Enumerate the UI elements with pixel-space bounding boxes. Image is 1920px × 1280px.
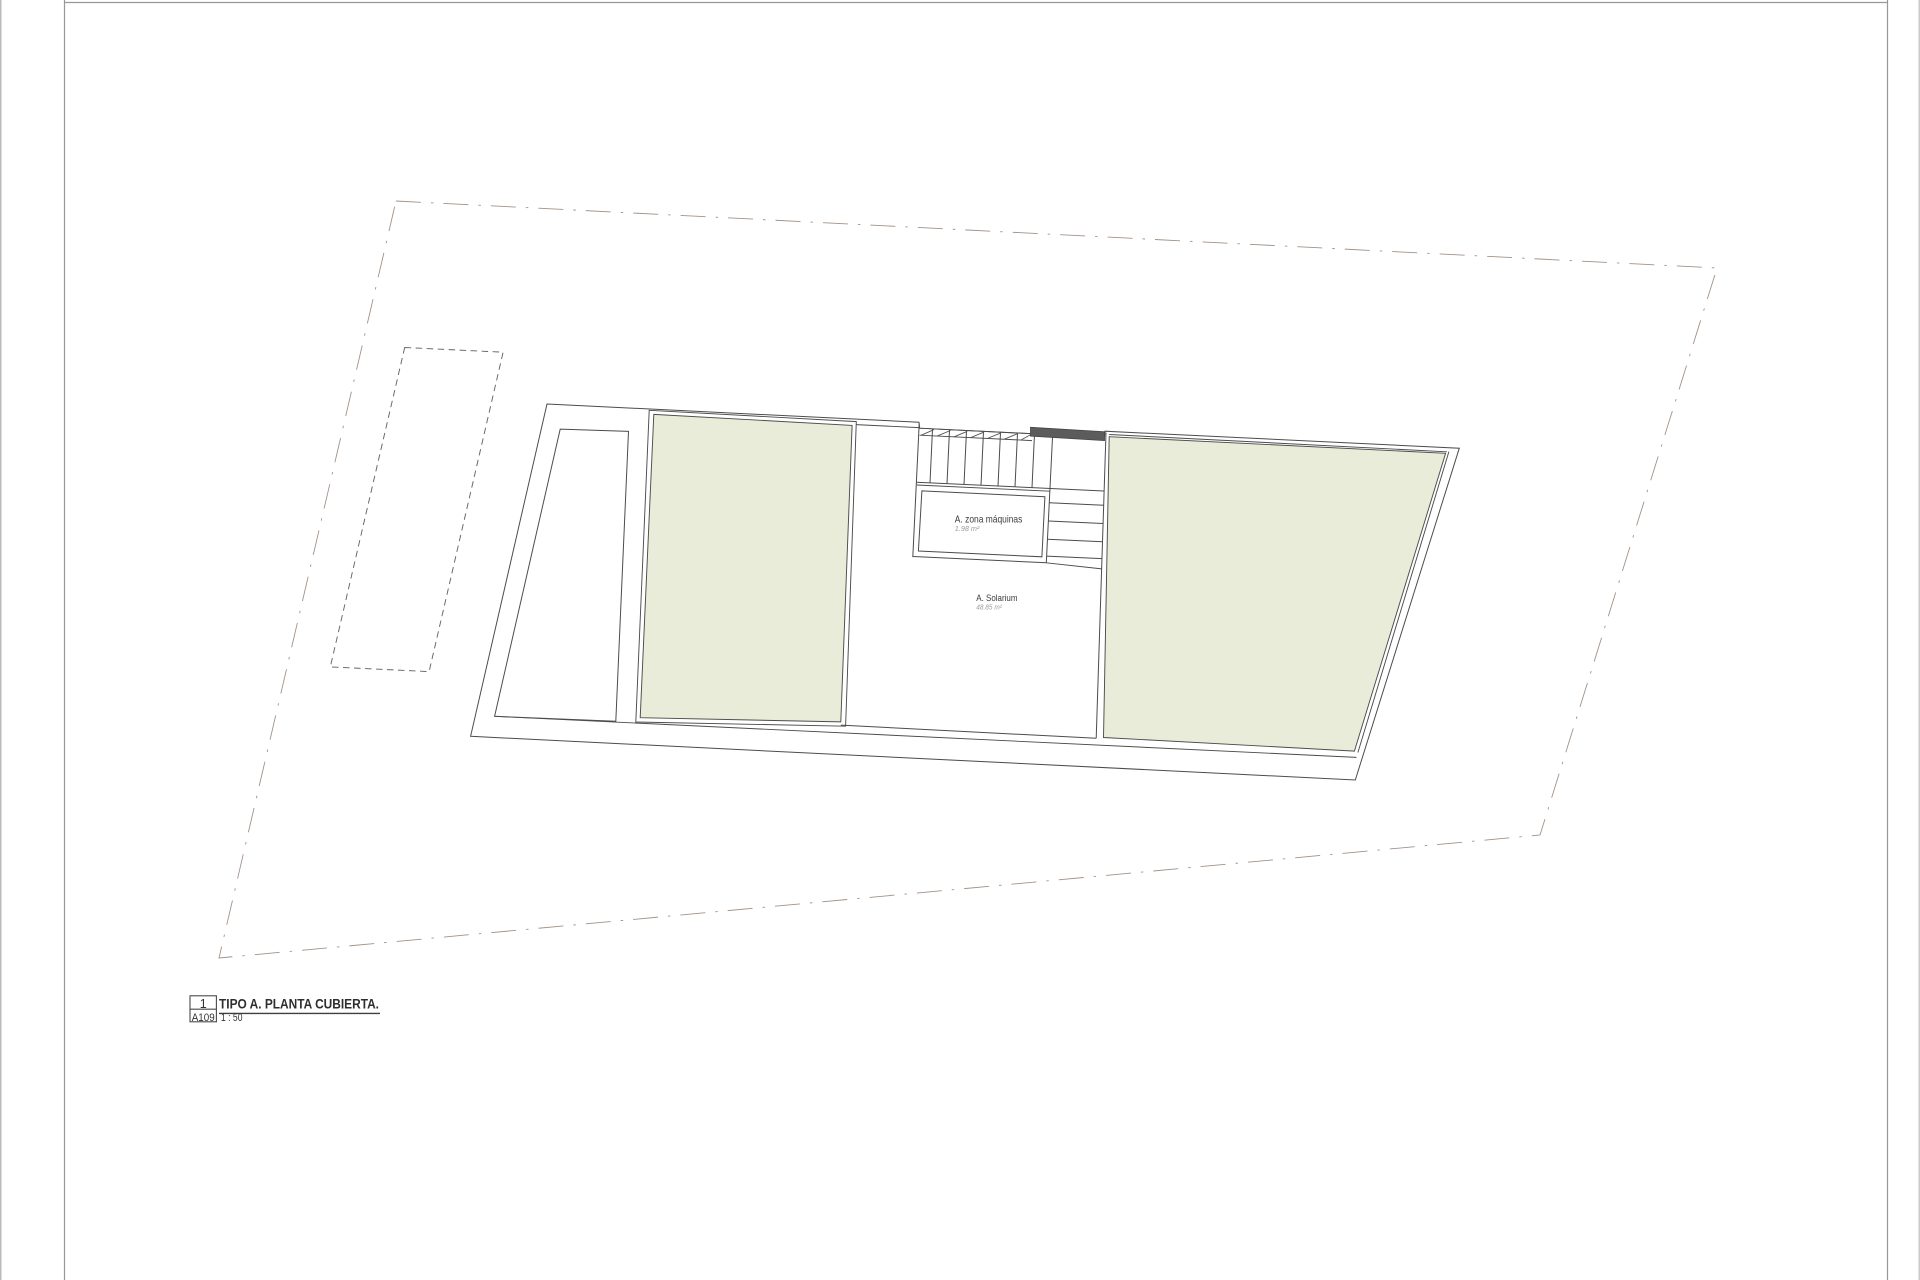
svg-text:1: 1 — [200, 997, 207, 1011]
svg-text:TIPO A. PLANTA CUBIERTA.: TIPO A. PLANTA CUBIERTA. — [219, 997, 379, 1012]
svg-text:48.85 m²: 48.85 m² — [976, 603, 1002, 612]
svg-text:A109: A109 — [192, 1012, 215, 1024]
svg-text:1.98 m²: 1.98 m² — [955, 524, 980, 533]
svg-text:1 : 50: 1 : 50 — [221, 1012, 243, 1024]
